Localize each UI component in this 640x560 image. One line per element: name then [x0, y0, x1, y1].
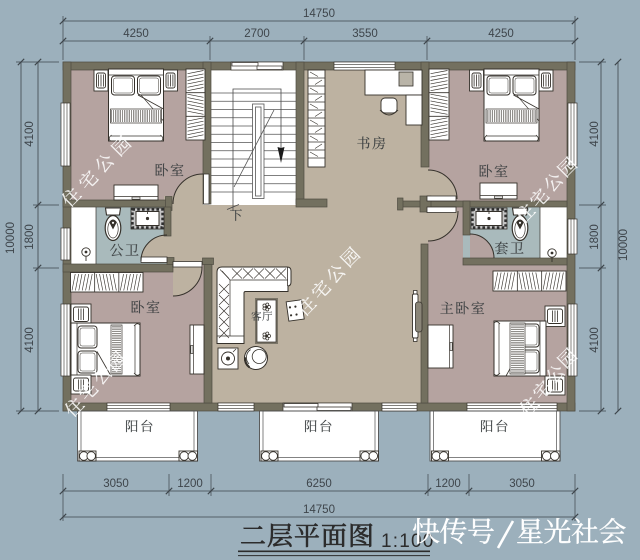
svg-text:2700: 2700 [244, 28, 270, 40]
svg-text:4100: 4100 [24, 327, 36, 353]
svg-text:4100: 4100 [589, 327, 601, 353]
svg-text:4100: 4100 [24, 121, 36, 147]
svg-text:14750: 14750 [303, 504, 335, 516]
svg-text:3050: 3050 [103, 478, 129, 490]
svg-text:1:100: 1:100 [381, 531, 435, 552]
svg-text:10000: 10000 [618, 229, 630, 261]
svg-text:1800: 1800 [24, 224, 36, 250]
svg-text:10000: 10000 [5, 222, 17, 254]
svg-text:4250: 4250 [488, 28, 514, 40]
svg-text:4250: 4250 [123, 28, 149, 40]
svg-text:3550: 3550 [352, 28, 378, 40]
svg-text:14750: 14750 [303, 8, 335, 20]
svg-text:3050: 3050 [509, 478, 535, 490]
svg-text:1800: 1800 [589, 224, 601, 250]
svg-text:1200: 1200 [435, 478, 461, 490]
svg-text:6250: 6250 [306, 478, 332, 490]
svg-text:4100: 4100 [589, 121, 601, 147]
svg-text:1200: 1200 [177, 478, 203, 490]
